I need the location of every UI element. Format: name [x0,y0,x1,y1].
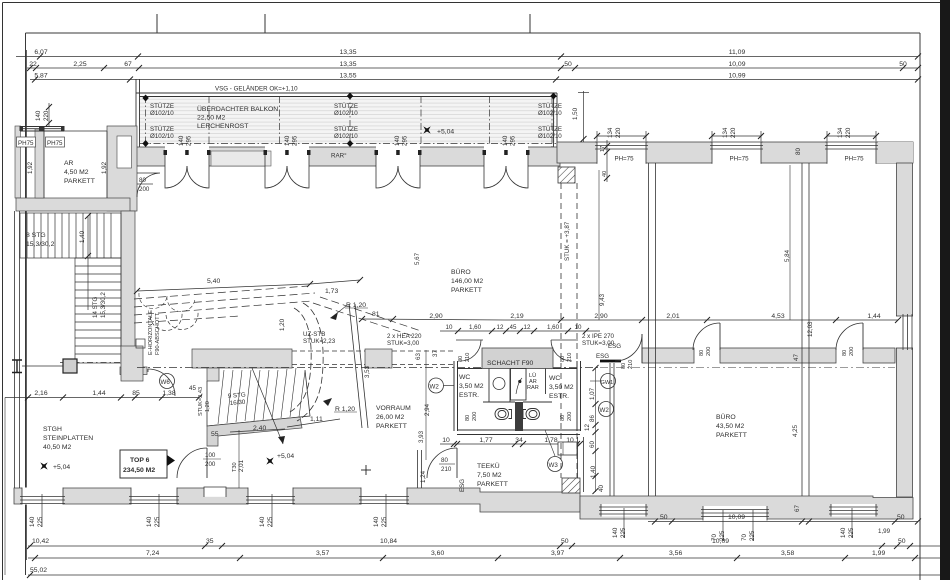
svg-text:200: 200 [205,461,216,468]
svg-text:8 STG: 8 STG [26,232,46,239]
svg-text:ESTR.: ESTR. [549,393,569,400]
svg-text:5,84: 5,84 [784,249,791,262]
svg-text:6,07: 6,07 [34,49,47,56]
svg-text:200: 200 [472,412,478,421]
svg-text:2 x HEA 220: 2 x HEA 220 [387,333,422,340]
svg-text:9,43: 9,43 [599,293,606,306]
svg-text:1,44: 1,44 [92,390,105,397]
svg-text:1,99: 1,99 [872,550,885,557]
svg-text:67: 67 [794,505,801,512]
svg-text:35: 35 [206,538,214,545]
svg-text:4,53: 4,53 [771,313,784,320]
svg-text:10: 10 [446,324,453,331]
svg-text:1,50: 1,50 [572,107,579,120]
svg-text:1,38: 1,38 [162,390,175,397]
svg-text:80: 80 [699,350,705,356]
svg-text:STÜTZE: STÜTZE [150,103,174,110]
svg-text:37: 37 [432,350,439,357]
svg-text:210: 210 [567,353,573,362]
svg-text:5,67: 5,67 [414,252,421,265]
svg-text:10: 10 [442,437,450,444]
svg-text:4,50 M2: 4,50 M2 [64,169,89,176]
svg-text:134: 134 [607,127,614,138]
svg-text:PARKETT: PARKETT [477,481,508,488]
svg-text:10,99: 10,99 [728,73,745,80]
svg-text:234,50 M2: 234,50 M2 [123,467,155,474]
svg-text:134: 134 [722,127,729,138]
svg-text:LÜ: LÜ [529,372,536,379]
svg-text:40: 40 [602,171,608,177]
svg-text:225: 225 [620,527,627,538]
svg-text:W3: W3 [549,462,559,469]
svg-text:STEINPLATTEN: STEINPLATTEN [43,435,93,442]
svg-text:225: 225 [267,516,274,527]
svg-text:140: 140 [840,527,847,538]
svg-text:ESG: ESG [459,479,466,492]
svg-text:STÜTZE: STÜTZE [538,126,562,133]
svg-text:W6: W6 [161,379,171,386]
svg-text:295: 295 [186,135,193,146]
svg-text:200: 200 [139,186,150,193]
svg-text:3,60: 3,60 [431,550,444,557]
svg-text:1,77: 1,77 [479,437,492,444]
svg-text:140: 140 [394,135,401,146]
svg-text:50: 50 [897,514,905,521]
svg-text:3,57: 3,57 [316,550,329,557]
svg-text:47: 47 [793,354,800,361]
svg-text:16/30: 16/30 [230,399,247,407]
svg-text:86: 86 [589,415,596,422]
svg-text:PH75: PH75 [18,140,34,147]
svg-text:50: 50 [899,61,907,68]
svg-text:80: 80 [458,356,464,362]
svg-text:220: 220 [615,127,622,138]
svg-text:220: 220 [730,127,737,138]
svg-text:140: 140 [612,527,619,538]
svg-text:W2: W2 [430,384,440,391]
svg-text:12: 12 [584,424,591,431]
svg-text:STÜTZE: STÜTZE [538,103,562,110]
svg-text:4,25: 4,25 [792,424,799,437]
svg-text:200: 200 [567,412,573,421]
svg-text:STUK = +3,87: STUK = +3,87 [564,221,571,261]
svg-text:45: 45 [510,324,517,331]
svg-text:PH=75: PH=75 [844,156,864,163]
svg-text:80: 80 [139,177,146,184]
svg-text:70: 70 [741,534,748,541]
svg-text:10,09: 10,09 [728,61,745,68]
svg-text:STÜTZE: STÜTZE [334,103,358,110]
svg-text:+5,04: +5,04 [277,453,294,460]
svg-text:67: 67 [124,61,132,68]
svg-text:10,42: 10,42 [32,538,49,545]
svg-text:SCHACHT F90: SCHACHT F90 [487,360,534,367]
svg-text:2 x IPE 270: 2 x IPE 270 [582,333,615,340]
svg-text:E-HORIZONTALE: E-HORIZONTALE [148,310,154,355]
svg-text:225: 225 [154,516,161,527]
svg-text:1,24: 1,24 [420,470,427,483]
svg-text:1,78: 1,78 [544,437,557,444]
svg-text:1,20: 1,20 [205,401,211,412]
svg-text:3,50 M2: 3,50 M2 [459,383,484,390]
svg-text:1,20: 1,20 [279,318,286,331]
svg-text:140: 140 [146,516,153,527]
svg-text:210: 210 [465,353,471,362]
svg-text:10,09: 10,09 [712,538,729,545]
svg-text:STUK=3,00: STUK=3,00 [387,340,420,347]
svg-text:10,84: 10,84 [380,538,397,545]
svg-text:26,00 M2: 26,00 M2 [376,414,405,421]
svg-text:15,3/30,2: 15,3/30,2 [100,292,107,318]
svg-text:13,35: 13,35 [339,49,356,56]
svg-text:140: 140 [29,516,36,527]
svg-text:50: 50 [898,538,906,545]
svg-text:RAR°: RAR° [331,153,347,160]
svg-text:50: 50 [564,61,572,68]
svg-text:100: 100 [205,452,216,459]
svg-text:PH75: PH75 [47,140,63,147]
svg-text:1,73: 1,73 [325,288,338,295]
svg-text:LERCHENROST: LERCHENROST [197,123,248,130]
svg-text:+5,04: +5,04 [53,464,70,471]
svg-text:3,97: 3,97 [551,550,564,557]
svg-text:146,00 M2: 146,00 M2 [451,278,483,285]
svg-text:UZ-STB: UZ-STB [303,331,325,338]
svg-text:295: 295 [402,135,409,146]
svg-text:12,03: 12,03 [807,321,814,337]
svg-text:45: 45 [189,385,196,392]
svg-text:43,50 M2: 43,50 M2 [716,423,745,430]
svg-text:PH=75: PH=75 [729,156,749,163]
svg-text:PARKETT: PARKETT [451,287,482,294]
svg-text:225: 225 [848,527,855,538]
svg-text:1,92: 1,92 [27,161,34,174]
svg-text:22: 22 [29,61,37,68]
svg-text:80: 80 [441,457,448,464]
svg-text:2,01: 2,01 [666,313,679,320]
svg-text:80: 80 [465,415,471,421]
svg-text:WC: WC [459,374,470,381]
svg-text:STGH: STGH [43,426,62,433]
svg-text:Ø102/10: Ø102/10 [150,110,174,117]
svg-text:295: 295 [510,135,517,146]
svg-text:1,40: 1,40 [79,230,86,243]
svg-text:GW1: GW1 [601,380,614,386]
svg-text:BÜRO: BÜRO [716,413,736,421]
svg-text:1,60: 1,60 [547,324,560,331]
svg-text:55: 55 [211,431,219,438]
svg-text:Ø102/10: Ø102/10 [334,110,358,117]
svg-text:134: 134 [837,127,844,138]
svg-text:STÜTZE: STÜTZE [150,126,174,133]
svg-text:140: 140 [35,110,42,121]
svg-text:12: 12 [497,324,504,331]
svg-text:40,50 M2: 40,50 M2 [43,444,72,451]
svg-text:210: 210 [441,466,452,473]
svg-text:1,92: 1,92 [101,161,108,174]
svg-text:40: 40 [598,485,605,492]
svg-text:140: 140 [502,135,509,146]
svg-text:3,53: 3,53 [364,365,371,378]
svg-text:PARKETT: PARKETT [64,178,95,185]
svg-text:14 STG: 14 STG [92,296,99,318]
svg-text:81: 81 [372,311,380,318]
svg-text:200: 200 [849,347,855,356]
svg-text:60: 60 [589,441,596,448]
svg-text:Ø102/10: Ø102/10 [538,110,562,117]
svg-text:15,3/30,2: 15,3/30,2 [26,241,55,248]
svg-text:5,40: 5,40 [207,278,220,285]
svg-text:Ø102/10: Ø102/10 [150,133,174,140]
svg-text:10,09: 10,09 [728,514,745,521]
svg-text:225: 225 [37,516,44,527]
svg-text:ESTR.: ESTR. [459,392,479,399]
svg-text:80: 80 [621,363,627,369]
svg-text:TOP 6: TOP 6 [130,457,150,464]
svg-text:F90-ABSCHOTT.: F90-ABSCHOTT. [155,312,161,355]
svg-text:2,16: 2,16 [34,390,47,397]
svg-text:5,87: 5,87 [34,73,47,80]
svg-text:STÜTZE: STÜTZE [334,126,358,133]
svg-text:34: 34 [515,437,523,444]
svg-text:STUK=2,43: STUK=2,43 [198,387,204,416]
svg-text:140: 140 [284,135,291,146]
svg-text:11,09: 11,09 [729,49,746,56]
svg-text:7,50 M2: 7,50 M2 [477,472,502,479]
svg-text:140: 140 [259,516,266,527]
svg-text:AR: AR [64,160,74,167]
svg-text:85: 85 [132,390,140,397]
svg-text:140: 140 [178,135,185,146]
svg-text:220: 220 [845,127,852,138]
svg-text:12: 12 [524,324,531,331]
svg-text:ESG: ESG [596,353,609,360]
svg-text:2,19: 2,19 [510,313,523,320]
svg-text:2,25: 2,25 [73,61,86,68]
svg-text:2,90: 2,90 [429,313,442,320]
svg-text:3,58: 3,58 [781,550,794,557]
svg-text:10: 10 [575,324,582,331]
svg-text:STUK=3,00: STUK=3,00 [582,340,615,347]
svg-text:3,56: 3,56 [669,550,682,557]
svg-text:1,99: 1,99 [878,528,891,535]
svg-text:STUK=2,23: STUK=2,23 [303,338,336,345]
svg-text:RAR: RAR [527,385,539,391]
svg-text:13,35: 13,35 [339,61,356,68]
svg-text:VSG - GELÄNDER OK=+1,10: VSG - GELÄNDER OK=+1,10 [215,86,298,93]
svg-text:BÜRO: BÜRO [451,268,471,276]
svg-text:22,50 M2: 22,50 M2 [197,115,226,122]
svg-text:3,93: 3,93 [418,430,425,443]
svg-text:55,02: 55,02 [30,567,47,574]
svg-text:210: 210 [628,360,634,369]
svg-text:W2: W2 [600,407,610,414]
svg-text:225: 225 [749,530,756,541]
svg-text:1,44: 1,44 [867,313,880,320]
svg-text:63: 63 [415,353,422,360]
svg-text:2,90: 2,90 [594,313,607,320]
svg-text:1,07: 1,07 [589,387,596,400]
svg-text:7,24: 7,24 [146,550,159,557]
svg-text:225: 225 [381,516,388,527]
svg-text:ÜBERDACHTER BALKON: ÜBERDACHTER BALKON [197,105,278,113]
svg-text:Ø102/10: Ø102/10 [538,133,562,140]
svg-text:295: 295 [292,135,299,146]
svg-text:PARKETT: PARKETT [716,432,747,439]
svg-text:WC: WC [549,375,560,382]
svg-text:PARKETT: PARKETT [376,423,407,430]
svg-text:80: 80 [842,350,848,356]
svg-text:13,55: 13,55 [339,73,356,80]
svg-text:Ø102/10: Ø102/10 [334,133,358,140]
svg-text:17: 17 [600,146,606,152]
svg-text:+5,04: +5,04 [437,129,454,136]
svg-text:TEEKÜ: TEEKÜ [477,462,500,470]
svg-text:140: 140 [373,516,380,527]
svg-text:PH=75: PH=75 [614,156,634,163]
svg-text:80: 80 [795,148,802,155]
svg-text:2,94: 2,94 [424,403,431,416]
svg-text:VORRAUM: VORRAUM [376,405,411,412]
svg-text:50: 50 [660,514,668,521]
svg-text:50: 50 [561,538,569,545]
svg-text:1,60: 1,60 [469,324,482,331]
svg-text:200: 200 [706,347,712,356]
